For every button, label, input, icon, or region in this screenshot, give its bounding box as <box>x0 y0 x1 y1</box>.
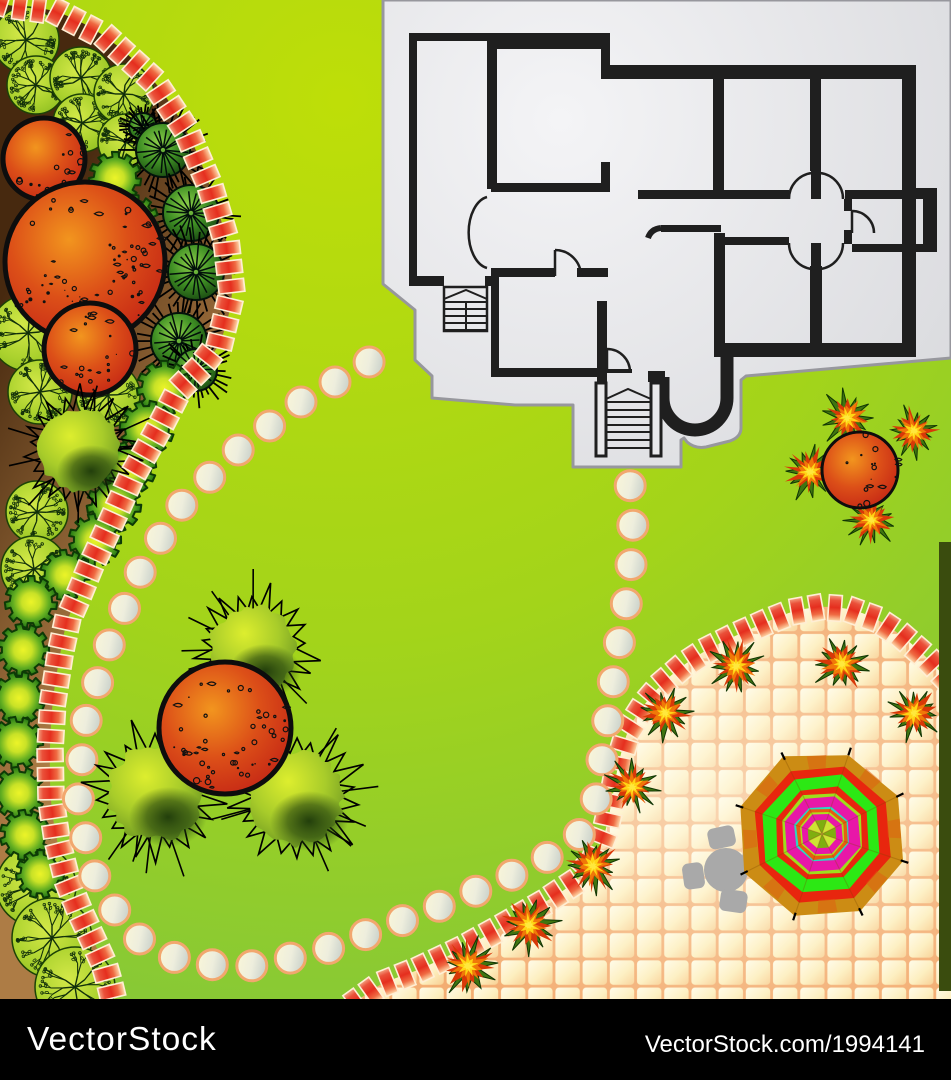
svg-text:VectorStock.com/1994141: VectorStock.com/1994141 <box>645 1031 925 1058</box>
svg-text:VectorStock: VectorStock <box>27 1021 217 1058</box>
